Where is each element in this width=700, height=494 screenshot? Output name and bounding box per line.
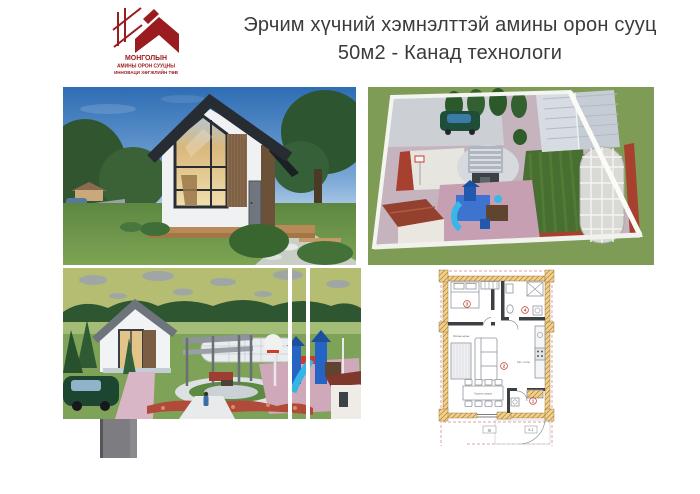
logo-line1: МОНГОЛЫН [125, 55, 167, 62]
toilet [507, 305, 513, 313]
title-line-2: 50м2 - Канад технологи [230, 39, 670, 67]
sheet-mark-right: К-1 [529, 428, 534, 432]
person [204, 392, 209, 406]
room-number-entry: 1 [532, 399, 535, 404]
basketball-hoop [415, 156, 424, 162]
sheet-mark-center: Ш [488, 427, 492, 432]
sheet-marks: Ш К-1 [483, 426, 537, 433]
site-aerial-render [368, 87, 654, 265]
collage-seam-2 [306, 268, 310, 419]
entry-washer [511, 398, 519, 406]
main-house-roof [536, 90, 620, 152]
kitchen-label: Гал тогоо [517, 360, 530, 364]
org-logo: МОНГОЛЫН АМИНЫ ОРОН СУУЦНЫ ИННОВАЦИ ХӨГЖ… [104, 4, 188, 78]
sofa [475, 338, 497, 380]
title-line-1: Эрчим хүчний хэмнэлттэй амины орон сууц [230, 11, 670, 39]
car [63, 376, 119, 411]
yard-render-block [63, 268, 361, 458]
outdoor-sofa [209, 372, 233, 381]
collage-seam-1 [288, 268, 292, 419]
logo-line2: АМИНЫ ОРОН СУУЦНЫ [117, 64, 175, 70]
dining-table-label: Хоолны ширээ [474, 392, 492, 396]
floor-plan: 1 2 3 4 Зочны өрөө Гал тогоо Хоолны ширэ… [437, 268, 557, 450]
wood-corner [261, 145, 275, 227]
room-number-bathroom: 4 [524, 308, 527, 313]
logo-line3: ИННОВАЦИ ХӨГЖЛИЙН ТӨВ [114, 68, 179, 75]
room-number-living: 2 [503, 364, 506, 369]
compound [374, 88, 640, 248]
slide: МОНГОЛЫН АМИНЫ ОРОН СУУЦНЫ ИННОВАЦИ ХӨГЖ… [0, 0, 700, 494]
house-exterior-render [63, 87, 356, 265]
wardrobe [481, 282, 499, 290]
yard-playground-render [63, 268, 361, 419]
bathroom-sink [506, 284, 513, 293]
entry-closet [527, 390, 543, 398]
page-title: Эрчим хүчний хэмнэлттэй амины орон сууц … [230, 11, 670, 67]
gray-pillar [100, 419, 137, 458]
stove [535, 348, 545, 360]
house-roof-icon [113, 8, 179, 53]
wood-slat-panel [227, 134, 247, 207]
washer [533, 306, 542, 315]
living-room-label: Зочны өрөө [453, 334, 470, 338]
furniture [451, 282, 545, 407]
